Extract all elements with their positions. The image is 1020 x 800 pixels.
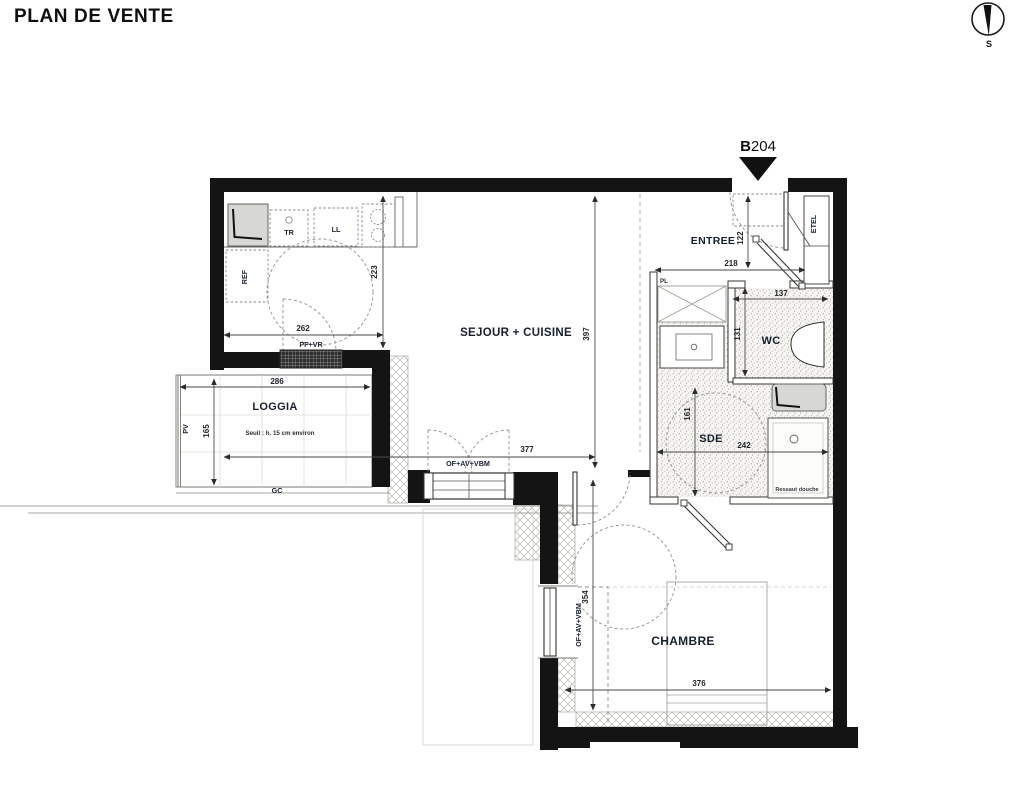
fridge-label: REF bbox=[240, 269, 249, 284]
wc-label: WC bbox=[762, 335, 781, 347]
svg-text:218: 218 bbox=[724, 259, 738, 268]
unit-marker: B204 bbox=[739, 138, 777, 181]
loggia-window-label: PF+VR bbox=[299, 340, 323, 349]
floor-plan-page: PLAN DE VENTE S B204 TR LL bbox=[0, 0, 1020, 800]
cooktop-unit bbox=[362, 204, 395, 247]
dim-entree-width: 218 bbox=[655, 259, 805, 270]
bed-outline bbox=[667, 582, 767, 725]
sejour-window-label: OF+AV+VBM bbox=[446, 459, 490, 468]
svg-text:376: 376 bbox=[692, 679, 706, 688]
kitchen-area: TR LL REF bbox=[224, 192, 417, 352]
shower-step-note: Ressaut douche bbox=[775, 487, 818, 493]
etel-label: ETEL bbox=[809, 214, 818, 233]
washing-machine-label: LL bbox=[332, 225, 341, 234]
closet-label: PL bbox=[660, 278, 668, 285]
compass-needle-icon bbox=[984, 5, 992, 36]
svg-text:242: 242 bbox=[737, 441, 751, 450]
svg-text:137: 137 bbox=[774, 289, 788, 298]
entrance-marker-icon bbox=[739, 157, 777, 181]
unit-building-code: B bbox=[740, 138, 751, 155]
svg-text:354: 354 bbox=[581, 590, 590, 604]
svg-text:397: 397 bbox=[582, 327, 591, 341]
svg-text:262: 262 bbox=[296, 324, 310, 333]
compass-icon: S bbox=[972, 3, 1004, 49]
svg-text:122: 122 bbox=[736, 231, 745, 245]
svg-text:223: 223 bbox=[370, 265, 379, 279]
dim-chambre-width: 376 bbox=[565, 679, 831, 690]
chambre-label: CHAMBRE bbox=[651, 634, 714, 648]
svg-text:377: 377 bbox=[520, 445, 534, 454]
svg-text:286: 286 bbox=[270, 377, 284, 386]
trash-label: TR bbox=[284, 228, 294, 237]
washbasin-cabinet bbox=[660, 326, 724, 368]
chambre-window-label: OF+AV+VBM bbox=[574, 603, 583, 647]
dim-chambre-depth: 354 bbox=[581, 480, 593, 710]
compass-south-label: S bbox=[986, 39, 992, 49]
dim-sejour-depth: 397 bbox=[582, 196, 595, 468]
sejour-label: SEJOUR + CUISINE bbox=[460, 327, 572, 339]
page-title: PLAN DE VENTE bbox=[14, 6, 174, 27]
entrance-door-leaf bbox=[784, 192, 788, 250]
svg-text:165: 165 bbox=[202, 424, 211, 438]
unit-number: 204 bbox=[751, 138, 776, 155]
loggia-rail-label: PV bbox=[181, 424, 190, 434]
gutter-label: GC bbox=[272, 486, 283, 495]
entrance-doormat bbox=[733, 194, 788, 226]
dim-kitchen-width: 262 bbox=[224, 324, 383, 335]
loggia-label: LOGGIA bbox=[252, 401, 297, 413]
entree-label: ENTREE bbox=[691, 235, 735, 247]
counter-end-panel bbox=[395, 197, 403, 247]
sde-sliding-door bbox=[681, 500, 732, 550]
loggia-threshold-note: Seuil : h. 15 cm environ bbox=[245, 430, 314, 437]
chambre-door-swing bbox=[577, 472, 630, 525]
svg-text:161: 161 bbox=[683, 407, 692, 421]
floor-plan-canvas: PLAN DE VENTE S B204 TR LL bbox=[0, 0, 1020, 800]
loggia-window bbox=[280, 350, 342, 368]
shower-tray bbox=[768, 418, 828, 498]
unit-label: B204 bbox=[740, 138, 776, 155]
etel-closet bbox=[804, 196, 829, 284]
sde-label: SDE bbox=[699, 433, 723, 445]
svg-text:131: 131 bbox=[733, 327, 742, 341]
turning-circle bbox=[572, 525, 676, 629]
chambre-door-leaf bbox=[573, 472, 577, 525]
dim-kitchen-depth: 223 bbox=[370, 196, 383, 348]
chambre-window bbox=[536, 584, 578, 658]
